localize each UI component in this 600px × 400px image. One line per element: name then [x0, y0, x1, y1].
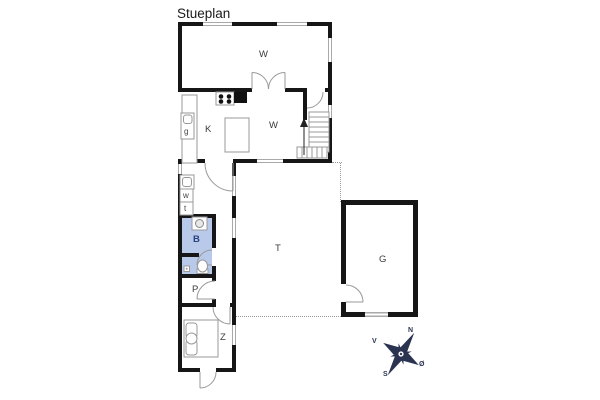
plan-graphics: [0, 0, 600, 400]
fixture-label-washer: w: [183, 192, 189, 200]
room-label-hall: P: [192, 285, 198, 295]
kitchen-sink-unit: [234, 92, 247, 103]
compass-rose-icon: [370, 322, 432, 387]
staircase: [297, 112, 329, 158]
room-label-bedroom: Z: [220, 333, 226, 343]
door-arc-stair-hall: [307, 92, 323, 108]
utility-sink-icon: [180, 175, 194, 189]
door-arc-hall: [197, 281, 215, 299]
door-arc-garage: [346, 285, 363, 302]
room-label-bathroom: B: [193, 235, 200, 245]
floor-plan-canvas: Stueplan: [0, 0, 600, 400]
room-label-kitchen: K: [205, 125, 211, 135]
stairs-up-arrow: [300, 118, 308, 127]
fixture-label-appliance: g: [184, 128, 188, 136]
fixture-label-dryer: t: [184, 205, 186, 213]
room-label-terrace: T: [275, 244, 281, 254]
room-label-living: W: [259, 50, 268, 60]
bed-icon: [184, 320, 218, 357]
compass-label-south: S: [383, 371, 388, 378]
kitchen-table: [225, 118, 249, 152]
door-arc-entrance: [200, 372, 216, 388]
bathroom-sink-icon: [192, 217, 207, 230]
compass-label-north: N: [408, 327, 413, 334]
door-arc-corridor: [205, 163, 233, 191]
compass-label-west: V: [372, 338, 377, 345]
page-title: Stueplan: [177, 6, 230, 21]
compass-label-east: Ø: [419, 361, 424, 368]
room-label-family: W: [269, 121, 278, 131]
shower-drain-icon: [184, 266, 190, 272]
toilet-icon: [197, 260, 208, 274]
stove-icon: [216, 92, 234, 105]
dryer-icon: [180, 202, 193, 215]
double-door-arc: [252, 73, 285, 90]
room-label-garage: G: [379, 255, 386, 265]
